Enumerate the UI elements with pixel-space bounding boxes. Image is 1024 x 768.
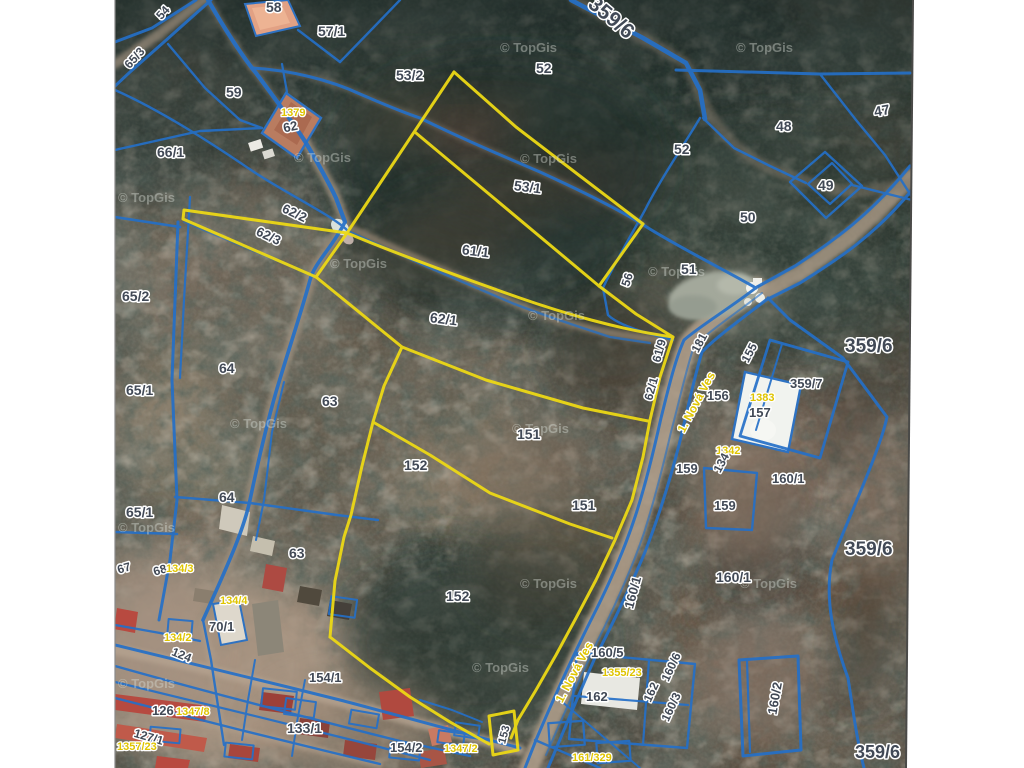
svg-text:52: 52 <box>536 60 552 76</box>
svg-text:49: 49 <box>818 177 834 193</box>
svg-text:1355/23: 1355/23 <box>602 667 642 679</box>
svg-text:134/3: 134/3 <box>166 563 194 575</box>
svg-text:134/2: 134/2 <box>164 632 192 644</box>
svg-text:© TopGis: © TopGis <box>330 256 387 271</box>
svg-text:359/7: 359/7 <box>790 376 823 391</box>
svg-text:160/1: 160/1 <box>772 471 805 486</box>
svg-text:64: 64 <box>219 489 235 505</box>
svg-text:50: 50 <box>740 209 756 225</box>
svg-text:161/329: 161/329 <box>572 752 612 764</box>
svg-text:© TopGis: © TopGis <box>118 676 175 691</box>
svg-text:53/2: 53/2 <box>396 67 423 83</box>
svg-text:47: 47 <box>873 101 891 119</box>
svg-text:159: 159 <box>676 461 698 476</box>
svg-text:48: 48 <box>776 118 792 134</box>
svg-text:64: 64 <box>219 360 235 376</box>
svg-text:© TopGis: © TopGis <box>500 40 557 55</box>
svg-text:58: 58 <box>266 0 282 15</box>
svg-text:1379: 1379 <box>281 107 305 119</box>
svg-text:359/6: 359/6 <box>855 742 900 762</box>
svg-text:134/4: 134/4 <box>220 595 248 607</box>
svg-text:57/1: 57/1 <box>318 23 345 39</box>
svg-text:© TopGis: © TopGis <box>118 520 175 535</box>
svg-text:160/1: 160/1 <box>716 569 751 585</box>
svg-text:© TopGis: © TopGis <box>294 150 351 165</box>
svg-text:63: 63 <box>289 545 305 561</box>
svg-text:59: 59 <box>226 84 242 100</box>
svg-text:359/6: 359/6 <box>845 539 893 560</box>
svg-text:151: 151 <box>517 426 541 442</box>
svg-text:151: 151 <box>572 497 596 513</box>
svg-text:65/2: 65/2 <box>122 288 149 304</box>
svg-text:© TopGis: © TopGis <box>520 151 577 166</box>
svg-text:62/1: 62/1 <box>429 309 458 328</box>
svg-text:65/1: 65/1 <box>126 382 153 398</box>
svg-text:1383: 1383 <box>750 392 774 404</box>
svg-text:© TopGis: © TopGis <box>230 416 287 431</box>
svg-text:61/1: 61/1 <box>461 241 490 260</box>
svg-text:359/6: 359/6 <box>845 336 893 357</box>
svg-text:70/1: 70/1 <box>209 619 234 634</box>
svg-text:152: 152 <box>446 588 470 604</box>
svg-text:66/1: 66/1 <box>157 144 184 160</box>
svg-text:154/2: 154/2 <box>390 740 423 755</box>
svg-text:160/5: 160/5 <box>591 645 624 660</box>
svg-text:1347/2: 1347/2 <box>444 743 478 755</box>
svg-text:62: 62 <box>282 118 299 136</box>
svg-text:1357/23: 1357/23 <box>117 741 157 753</box>
svg-text:152: 152 <box>404 457 428 473</box>
svg-text:159: 159 <box>714 498 736 513</box>
svg-text:154/1: 154/1 <box>309 670 342 685</box>
svg-text:© TopGis: © TopGis <box>520 576 577 591</box>
svg-text:51: 51 <box>681 261 697 277</box>
svg-text:65/1: 65/1 <box>126 504 153 520</box>
svg-text:© TopGis: © TopGis <box>736 40 793 55</box>
svg-text:63: 63 <box>322 393 338 409</box>
svg-text:© TopGis: © TopGis <box>118 190 175 205</box>
svg-text:© TopGis: © TopGis <box>472 660 529 675</box>
svg-text:126: 126 <box>152 703 174 718</box>
svg-text:53/1: 53/1 <box>513 177 542 196</box>
svg-text:162: 162 <box>586 689 608 704</box>
svg-text:52: 52 <box>674 141 690 157</box>
svg-text:133/1: 133/1 <box>287 720 322 736</box>
svg-text:1347/8: 1347/8 <box>176 706 210 718</box>
svg-text:157: 157 <box>749 405 771 420</box>
svg-text:© TopGis: © TopGis <box>528 308 585 323</box>
